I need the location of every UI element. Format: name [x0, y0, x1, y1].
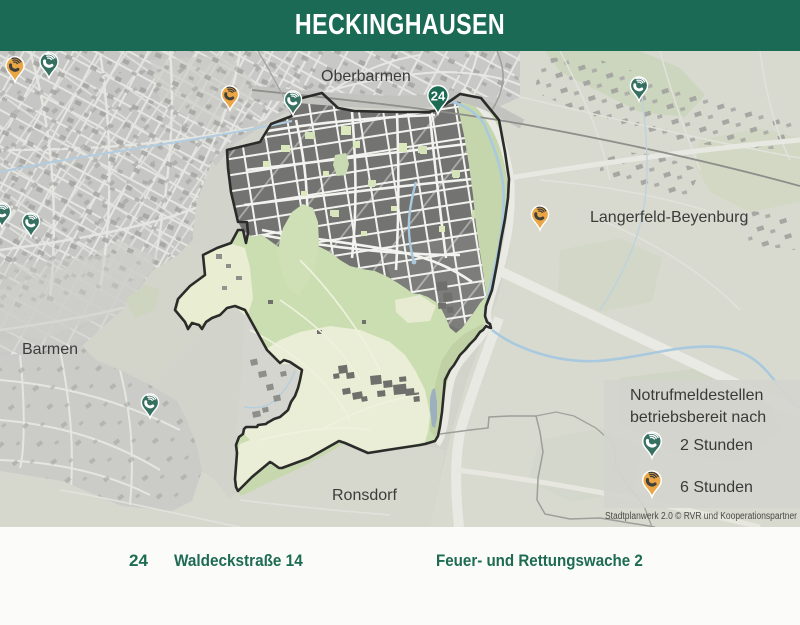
svg-text:2 Stunden: 2 Stunden — [680, 437, 753, 454]
svg-text:Notrufmeldestellen: Notrufmeldestellen — [630, 387, 763, 404]
svg-text:Oberbarmen: Oberbarmen — [321, 68, 411, 85]
svg-text:Langerfeld-Beyenburg: Langerfeld-Beyenburg — [590, 209, 748, 226]
svg-text:6 Stunden: 6 Stunden — [680, 479, 753, 496]
svg-text:24: 24 — [431, 89, 446, 104]
svg-text:betriebsbereit nach: betriebsbereit nach — [630, 409, 766, 426]
svg-text:Ronsdorf: Ronsdorf — [332, 487, 397, 504]
svg-text:Barmen: Barmen — [22, 341, 78, 358]
svg-text:Stadtplanwerk 2.0 © RVR und Ko: Stadtplanwerk 2.0 © RVR und Kooperations… — [605, 511, 798, 522]
